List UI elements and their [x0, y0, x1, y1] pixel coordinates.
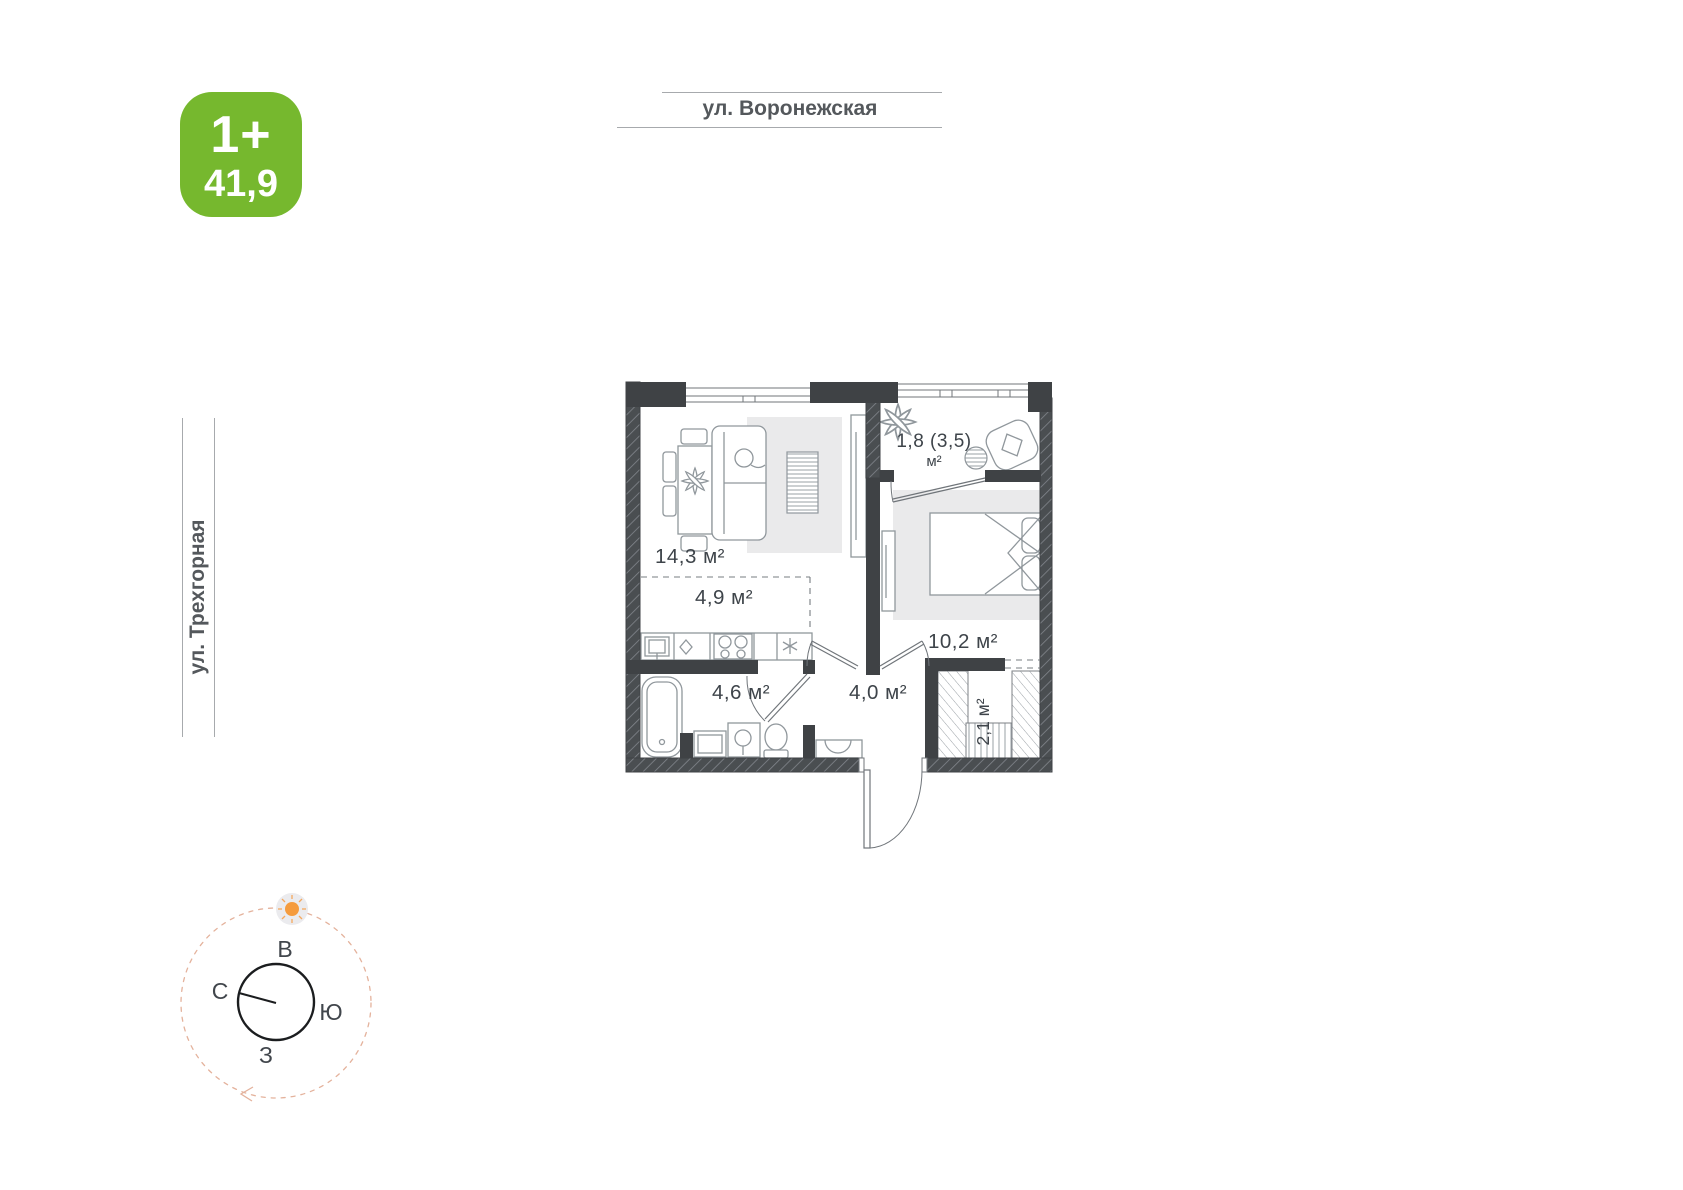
washing-machine	[694, 731, 726, 757]
wall-right	[1040, 398, 1052, 772]
pillow	[1022, 518, 1040, 553]
street-top-line-upper	[662, 92, 942, 93]
bathtub	[642, 677, 682, 757]
wall-bottom-left	[626, 758, 863, 772]
sink-icon	[645, 637, 669, 660]
bedroom-door	[880, 641, 929, 669]
flower-icon	[682, 468, 708, 494]
person-icon	[735, 449, 753, 467]
toilet	[764, 724, 788, 758]
sofa	[712, 426, 766, 540]
sun-icon	[276, 893, 308, 925]
bed	[930, 513, 1043, 595]
wall-left	[626, 382, 640, 772]
total-area-label: 41,9	[180, 165, 302, 203]
kitchen-counter	[641, 633, 812, 660]
street-left-label: ул. Трехгорная	[186, 437, 210, 757]
stove-icon	[714, 634, 752, 659]
hall-cabinet	[816, 740, 862, 758]
compass-south-label: Ю	[319, 999, 342, 1025]
living-window	[686, 388, 810, 402]
street-top-line-lower	[617, 127, 942, 128]
wall-bottom-right	[922, 758, 1052, 772]
wall-living-balcony	[866, 398, 880, 478]
balcony-area-unit: м²	[926, 453, 941, 470]
living-area-label: 14,3 м²	[655, 545, 725, 568]
armchair	[982, 416, 1041, 474]
compass-west-label: З	[259, 1042, 273, 1068]
street-left-line-outer	[182, 418, 183, 737]
apartment-type-badge: 1+ 41,9	[180, 92, 302, 217]
balcony-window	[898, 384, 1028, 397]
street-left-line-inner	[214, 418, 215, 737]
compass: В С Ю З	[150, 815, 410, 1115]
bathroom-sink	[728, 723, 760, 757]
wardrobe-area-label: 2,1 м²	[973, 698, 993, 745]
balcony-area-label: 1,8 (3,5)	[896, 431, 971, 452]
floor-plan-page: 1+ 41,9 ул. Воронежская ул. Трехгорная	[0, 0, 1683, 1190]
orbit-arrow-icon	[241, 1087, 253, 1101]
dining-set	[663, 429, 712, 551]
tv-unit	[851, 415, 866, 557]
coffee-table	[787, 452, 818, 513]
bathroom-area-label: 4,6 м²	[712, 681, 770, 704]
floor-plan-drawing: 14,3 м² 4,9 м² 4,6 м² 4,0 м² 10,2 м² 1,8…	[600, 370, 1070, 870]
compass-east-label: В	[277, 936, 292, 962]
hall-area-label: 4,0 м²	[849, 681, 907, 704]
kitchen-area-label: 4,9 м²	[695, 586, 753, 609]
bedroom-area-label: 10,2 м²	[928, 630, 998, 653]
entry-door	[859, 758, 927, 848]
bedroom-dresser	[882, 531, 895, 611]
rooms-count-label: 1+	[180, 109, 302, 161]
street-top-label: ул. Воронежская	[640, 97, 940, 121]
compass-north-label: С	[212, 978, 229, 1004]
